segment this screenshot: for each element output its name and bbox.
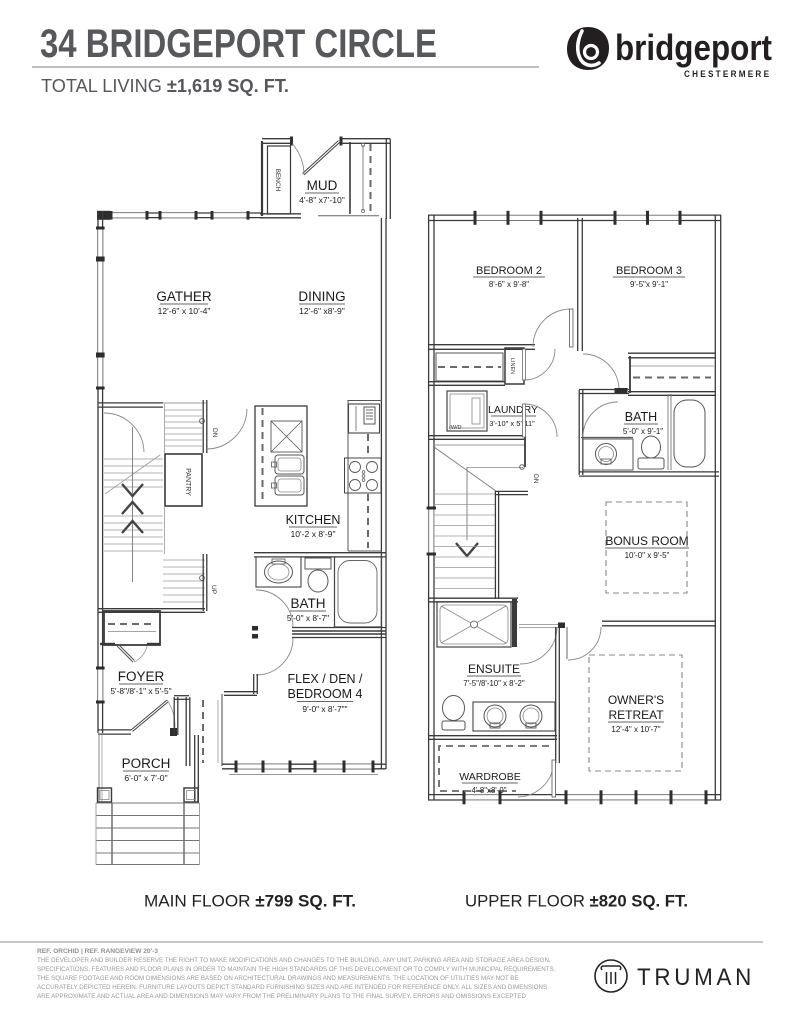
svg-text:12'-6" x 10'-4": 12'-6" x 10'-4": [158, 306, 211, 316]
svg-text:GATHER: GATHER: [156, 289, 212, 304]
svg-text:PANTRY: PANTRY: [184, 468, 191, 496]
svg-text:9'-5"x 9'-1": 9'-5"x 9'-1": [630, 280, 668, 289]
svg-text:MUD: MUD: [307, 178, 338, 193]
svg-text:bridgeport: bridgeport: [615, 27, 772, 68]
svg-text:DN: DN: [532, 474, 539, 484]
svg-text:34 BRIDGEPORT CIRCLE: 34 BRIDGEPORT CIRCLE: [40, 22, 437, 66]
svg-text:LINEN: LINEN: [509, 358, 515, 374]
svg-text:4'-8"x8'-0": 4'-8"x8'-0": [472, 786, 507, 795]
svg-text:BATH: BATH: [290, 596, 325, 611]
svg-text:ACCURATELY DEPICTED HEREIN. FU: ACCURATELY DEPICTED HEREIN. FURNITURE LA…: [37, 984, 547, 991]
svg-text:9'-0" x 8'-7"": 9'-0" x 8'-7"": [302, 704, 347, 714]
svg-text:BONUS ROOM: BONUS ROOM: [605, 534, 688, 548]
svg-text:BEDROOM 3: BEDROOM 3: [616, 265, 682, 277]
svg-text:6'-0" x 7'-0": 6'-0" x 7'-0": [124, 773, 167, 783]
svg-text:12'-6" x8'-9": 12'-6" x8'-9": [299, 306, 345, 316]
svg-text:3'-10" x 5'-11": 3'-10" x 5'-11": [489, 419, 535, 428]
svg-text:5'-0" x 8'-7": 5'-0" x 8'-7": [287, 613, 329, 623]
svg-text:BATH: BATH: [625, 410, 657, 424]
svg-text:ENSUITE: ENSUITE: [468, 662, 520, 676]
svg-text:TOTAL LIVING ±1,619 SQ. FT.: TOTAL LIVING ±1,619 SQ. FT.: [41, 76, 289, 96]
svg-text:REF. ORCHID | REF. RANGEVIEW: REF. ORCHID | REF. RANGEVIEW 20'-3: [37, 948, 158, 955]
svg-text:FOYER: FOYER: [118, 669, 165, 684]
svg-text:UP: UP: [210, 585, 217, 594]
svg-text:BEDROOM 4: BEDROOM 4: [287, 687, 362, 701]
svg-text:OWNER'S: OWNER'S: [608, 693, 664, 707]
svg-text:ARE APPROXIMATE AND ACTUAL ARE: ARE APPROXIMATE AND ACTUAL AREA AND DIME…: [37, 993, 526, 1000]
svg-text:PORCH: PORCH: [122, 756, 171, 771]
svg-text:THE SQUARE FOOTAGE AND ROOM DI: THE SQUARE FOOTAGE AND ROOM DIMENSIONS A…: [37, 975, 519, 982]
svg-text:WARDROBE: WARDROBE: [459, 771, 520, 783]
svg-text:10'-0" x 9'-5": 10'-0" x 9'-5": [625, 551, 670, 560]
svg-text:BEDROOM 2: BEDROOM 2: [476, 265, 542, 277]
svg-text:4'-8" x7'-10": 4'-8" x7'-10": [299, 195, 345, 205]
svg-text:FLEX / DEN /: FLEX / DEN /: [287, 672, 363, 686]
svg-text:C H E S T E R M E R E: C H E S T E R M E R E: [684, 69, 769, 79]
svg-text:5'-0" x 9'-1": 5'-0" x 9'-1": [623, 427, 663, 436]
svg-text:LAUNDRY: LAUNDRY: [488, 404, 538, 416]
svg-text:DINING: DINING: [298, 289, 345, 304]
svg-text:KITCHEN: KITCHEN: [286, 513, 341, 527]
svg-text:RETREAT: RETREAT: [608, 708, 664, 722]
svg-text:(W/D: (W/D: [449, 425, 462, 431]
svg-text:THE DEVELOPER AND BUILDER RESE: THE DEVELOPER AND BUILDER RESERVE THE RI…: [37, 957, 551, 964]
svg-text:5'-8"/8'-1" x 5'-5": 5'-8"/8'-1" x 5'-5": [110, 686, 171, 696]
svg-text:7'-5"/8'-10" x 8'-2": 7'-5"/8'-10" x 8'-2": [463, 679, 525, 688]
svg-text:12'-4" x 10'-7": 12'-4" x 10'-7": [611, 725, 660, 734]
svg-text:UPPER FLOOR ±820 SQ. FT.: UPPER FLOOR ±820 SQ. FT.: [465, 893, 688, 911]
svg-text:8'-6" x 9'-8": 8'-6" x 9'-8": [489, 280, 529, 289]
svg-text:10'-2 x 8'-9": 10'-2 x 8'-9": [290, 529, 335, 539]
svg-text:BENCH: BENCH: [274, 169, 281, 192]
svg-text:DN: DN: [211, 428, 218, 438]
svg-text:MAIN FLOOR ±799 SQ. FT.: MAIN FLOOR ±799 SQ. FT.: [144, 893, 356, 911]
svg-text:SPECIFICATIONS, FEATURES AND F: SPECIFICATIONS, FEATURES AND FLOOR PLANS…: [37, 966, 556, 973]
svg-text:TRUMAN: TRUMAN: [637, 964, 755, 991]
